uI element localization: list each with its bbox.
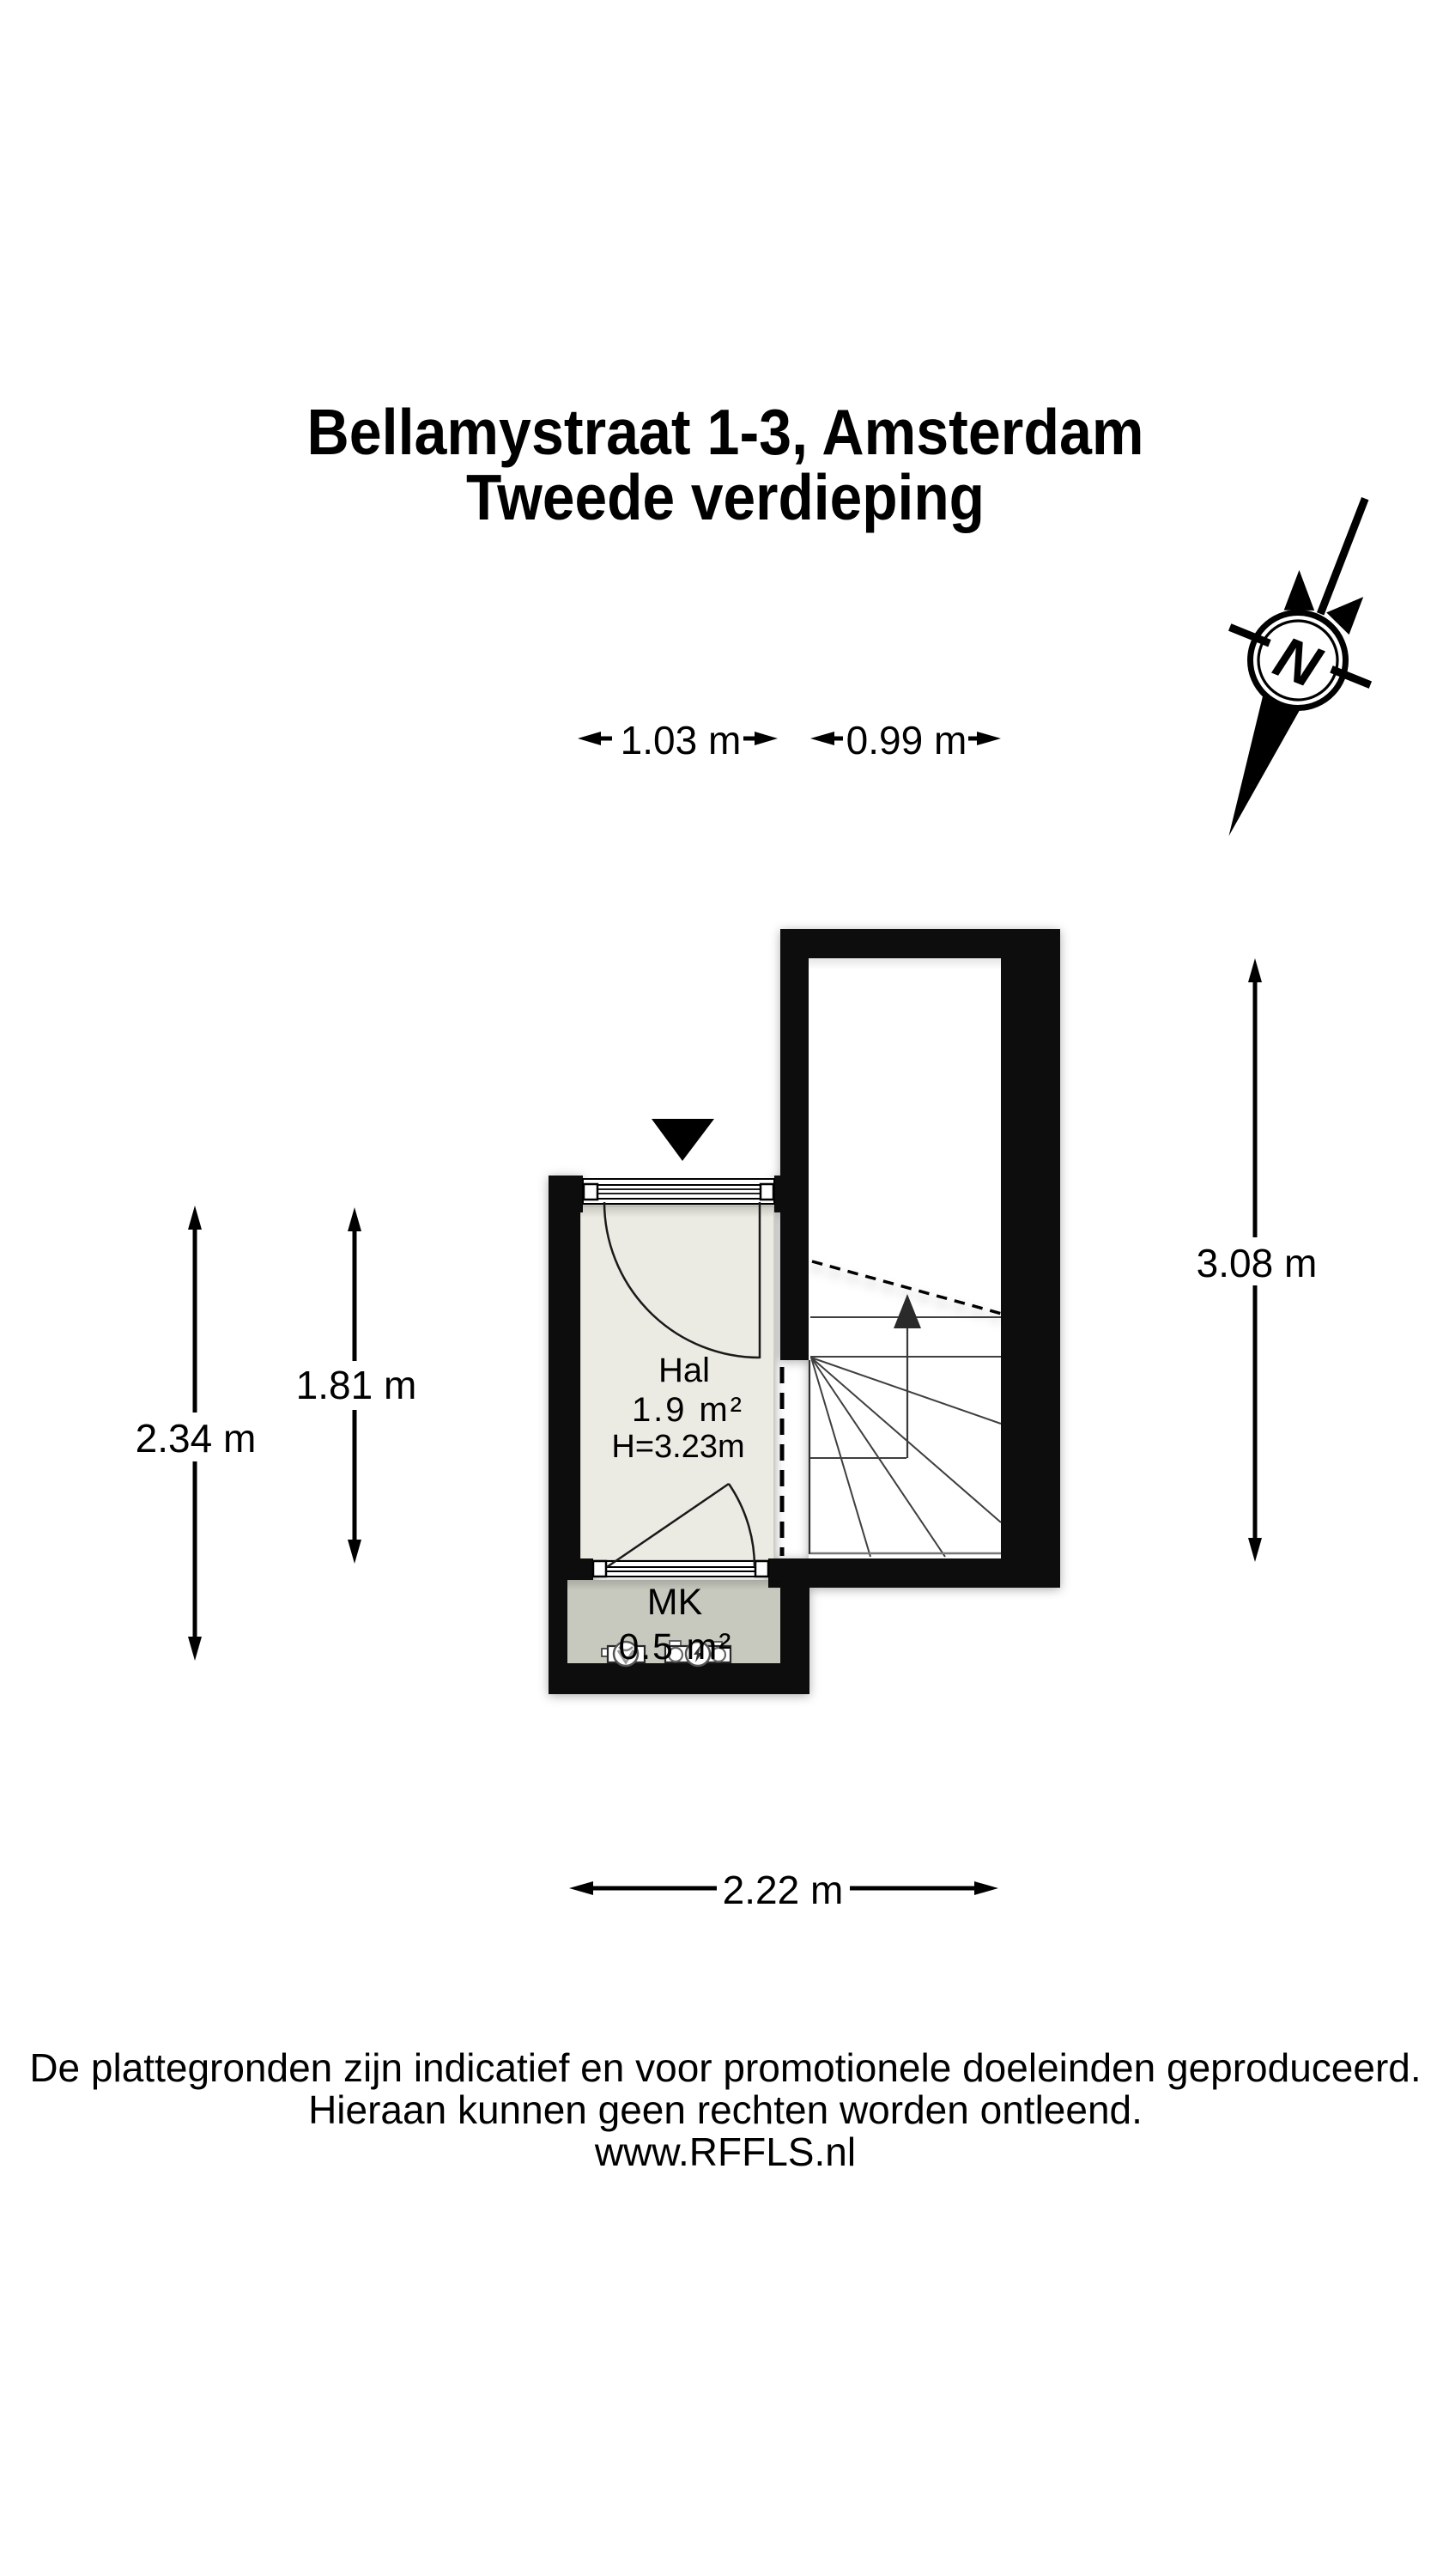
svg-text:1.81 m: 1.81 m — [296, 1363, 417, 1407]
svg-text:0.5 m²: 0.5 m² — [619, 1626, 731, 1668]
svg-text:Bellamystraat 1-3, Amsterdam: Bellamystraat 1-3, Amsterdam — [307, 396, 1144, 468]
svg-text:1.9 m²: 1.9 m² — [632, 1391, 742, 1429]
svg-text:Hal: Hal — [658, 1352, 710, 1389]
svg-text:1.03 m: 1.03 m — [621, 718, 742, 762]
svg-text:0.99 m: 0.99 m — [846, 718, 967, 762]
svg-text:MK: MK — [647, 1582, 703, 1623]
svg-text:2.22 m: 2.22 m — [723, 1868, 844, 1912]
svg-text:De plattegronden zijn indicati: De plattegronden zijn indicatief en voor… — [29, 2045, 1421, 2090]
svg-text:Hieraan kunnen geen rechten wo: Hieraan kunnen geen rechten worden ontle… — [308, 2087, 1143, 2132]
svg-text:www.RFFLS.nl: www.RFFLS.nl — [594, 2129, 856, 2174]
svg-text:Tweede verdieping: Tweede verdieping — [466, 461, 985, 533]
svg-text:2.34 m: 2.34 m — [136, 1416, 257, 1461]
svg-text:H=3.23m: H=3.23m — [611, 1429, 744, 1465]
svg-text:3.08 m: 3.08 m — [1197, 1241, 1318, 1285]
